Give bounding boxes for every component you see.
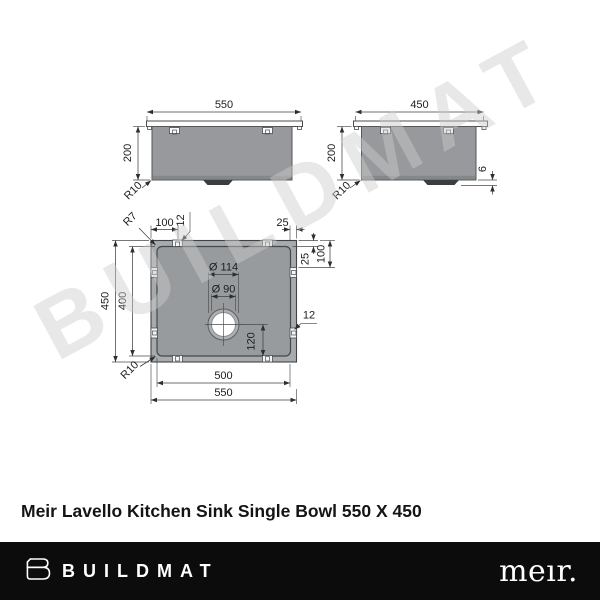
- drain-outer-dia-dim: Ø 114: [209, 262, 238, 274]
- drain-offset-dim: 120: [246, 332, 258, 350]
- side-width-dim: 450: [410, 99, 428, 111]
- footer-bar: BUILDMAT meır.: [0, 542, 600, 600]
- top-inner-height-dim: 400: [117, 292, 129, 310]
- clip-offset-top-dim: 100: [155, 217, 173, 229]
- mounting-clip: [263, 128, 273, 134]
- front-width-dim: 550: [215, 99, 233, 111]
- front-depth-dim: 200: [122, 144, 134, 162]
- top-outer-width-dim: 550: [214, 387, 232, 399]
- meir-logo: meır.: [499, 554, 578, 589]
- side-bowl-body: [362, 127, 477, 181]
- bowl-corner-radius-dim: R10: [118, 359, 141, 382]
- drain-hole-dia-dim: Ø 90: [212, 284, 236, 296]
- clip-slot-right-dim: 12: [303, 310, 315, 322]
- front-bowl-body: [152, 127, 292, 181]
- side-drain: [423, 180, 459, 185]
- side-view: 450 200 R10 6: [326, 99, 497, 202]
- top-corner-radius-dim: R7: [121, 210, 139, 228]
- front-radius-dim: R10: [122, 179, 145, 202]
- top-inner-width-dim: 500: [214, 370, 232, 382]
- side-depth-dim: 200: [326, 144, 338, 162]
- front-drain: [203, 180, 233, 185]
- buildmat-b-icon: [22, 556, 52, 587]
- front-rim: [147, 121, 303, 127]
- mounting-clip: [381, 128, 391, 134]
- side-drain-height-dim: 6: [477, 166, 489, 172]
- mounting-clip: [444, 128, 454, 134]
- side-radius-dim: R10: [330, 179, 353, 202]
- top-view: Ø 114 Ø 90 120 450 400 500 550 100: [100, 210, 336, 404]
- side-rim: [354, 121, 488, 127]
- buildmat-logo: BUILDMAT: [22, 556, 219, 587]
- buildmat-wordmark: BUILDMAT: [62, 561, 219, 582]
- clip-slot-top-dim: 12: [175, 214, 187, 226]
- flange-width-right-dim: 25: [300, 253, 312, 265]
- clip-offset-right-dim: 100: [316, 245, 328, 263]
- technical-drawing: 550 200 R10 450: [0, 0, 600, 540]
- mounting-clip: [170, 128, 180, 134]
- top-outer-height-dim: 450: [100, 292, 112, 310]
- spec-sheet: 550 200 R10 450: [0, 0, 600, 600]
- product-title: Meir Lavello Kitchen Sink Single Bowl 55…: [21, 501, 422, 522]
- front-view: 550 200 R10: [122, 99, 303, 202]
- flange-width-top-dim: 25: [276, 217, 288, 229]
